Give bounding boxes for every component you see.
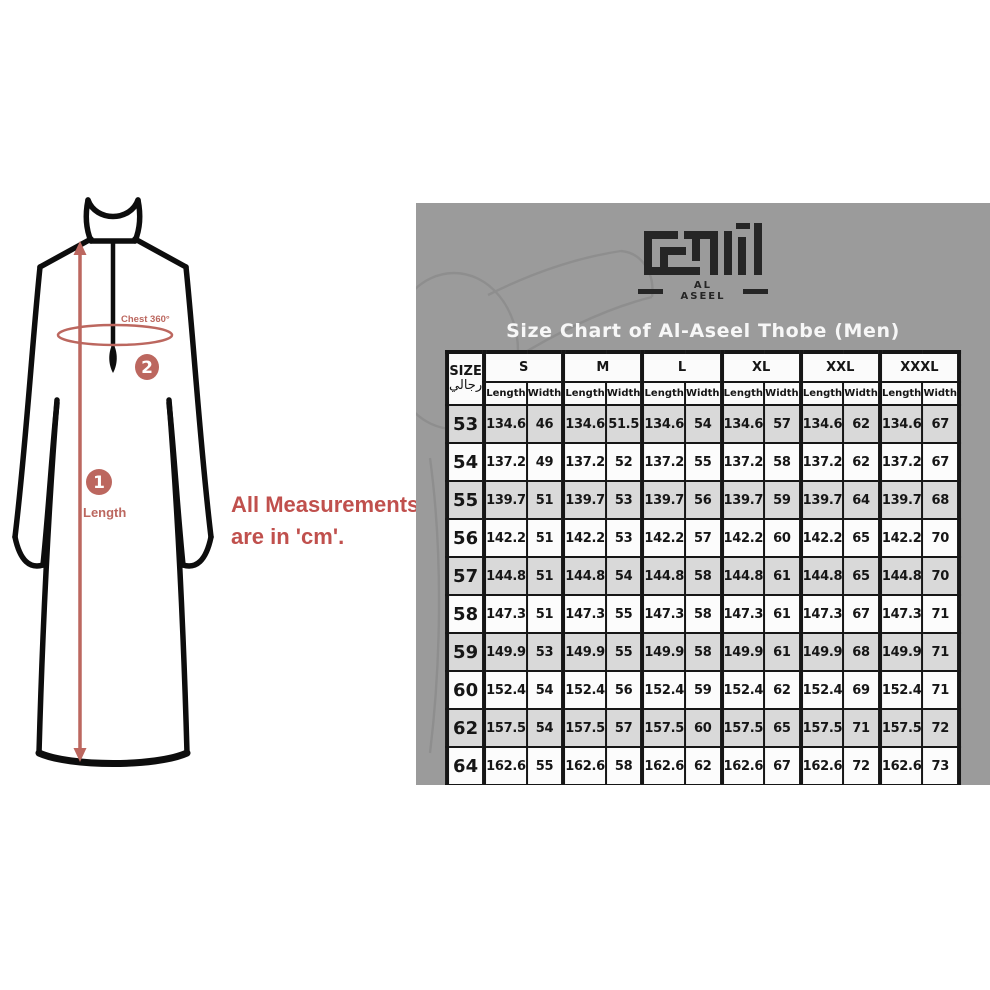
length-value: 134.6: [563, 405, 606, 443]
length-value: 142.2: [722, 519, 765, 557]
width-value: 58: [685, 633, 722, 671]
width-value: 54: [685, 405, 722, 443]
width-value: 59: [764, 481, 801, 519]
length-value: 137.2: [880, 443, 923, 481]
chest-label: Chest 360°: [121, 314, 170, 325]
length-value: 147.3: [484, 595, 527, 633]
length-value: 142.2: [801, 519, 844, 557]
note-line-1: All Measurements: [231, 489, 431, 521]
size-row-60: 60152.454152.456152.459152.462152.469152…: [447, 671, 959, 709]
length-value: 134.6: [642, 405, 685, 443]
sub-header-width: Width: [922, 382, 959, 405]
group-header-s: S: [484, 352, 563, 382]
length-value: 157.5: [722, 709, 765, 747]
length-value: 152.4: [642, 671, 685, 709]
length-value: 147.3: [880, 595, 923, 633]
length-value: 142.2: [563, 519, 606, 557]
length-value: 162.6: [801, 747, 844, 785]
width-value: 51.5: [606, 405, 643, 443]
length-value: 152.4: [484, 671, 527, 709]
width-value: 70: [922, 519, 959, 557]
length-label: Length: [83, 505, 126, 520]
width-value: 53: [606, 481, 643, 519]
length-value: 144.8: [722, 557, 765, 595]
note-line-2: are in 'cm'.: [231, 521, 431, 553]
sub-header-length: Length: [880, 382, 923, 405]
size-value: 59: [447, 633, 484, 671]
wordmark-bar-right: [743, 289, 768, 294]
length-value: 149.9: [801, 633, 844, 671]
length-value: 142.2: [484, 519, 527, 557]
width-value: 55: [527, 747, 564, 785]
width-value: 71: [843, 709, 880, 747]
width-value: 61: [764, 633, 801, 671]
width-value: 61: [764, 595, 801, 633]
size-table: SIZEرجاليSMLXLXXLXXXLLengthWidthLengthWi…: [445, 350, 961, 785]
size-row-57: 57144.851144.854144.858144.861144.865144…: [447, 557, 959, 595]
length-value: 137.2: [484, 443, 527, 481]
size-value: 60: [447, 671, 484, 709]
sub-header-width: Width: [764, 382, 801, 405]
brand-name: AL ASEEL: [669, 280, 736, 302]
width-value: 67: [764, 747, 801, 785]
width-value: 62: [685, 747, 722, 785]
size-row-55: 55139.751139.753139.756139.759139.764139…: [447, 481, 959, 519]
width-value: 64: [843, 481, 880, 519]
size-value: 64: [447, 747, 484, 785]
size-row-53: 53134.646134.651.5134.654134.657134.6621…: [447, 405, 959, 443]
length-value: 134.6: [484, 405, 527, 443]
width-value: 51: [527, 595, 564, 633]
length-value: 142.2: [642, 519, 685, 557]
width-value: 67: [922, 443, 959, 481]
placket-teardrop: [109, 343, 117, 373]
width-value: 69: [843, 671, 880, 709]
sub-header-length: Length: [563, 382, 606, 405]
length-value: 149.9: [642, 633, 685, 671]
length-value: 142.2: [880, 519, 923, 557]
size-chart-panel: AL ASEEL Size Chart of Al-Aseel Thobe (M…: [416, 203, 990, 785]
width-value: 56: [685, 481, 722, 519]
length-value: 144.8: [563, 557, 606, 595]
width-value: 54: [606, 557, 643, 595]
length-value: 157.5: [484, 709, 527, 747]
size-row-56: 56142.251142.253142.257142.260142.265142…: [447, 519, 959, 557]
length-value: 152.4: [801, 671, 844, 709]
length-value: 144.8: [801, 557, 844, 595]
size-row-59: 59149.953149.955149.958149.961149.968149…: [447, 633, 959, 671]
size-value: 56: [447, 519, 484, 557]
length-arrow: [74, 241, 87, 762]
width-value: 61: [764, 557, 801, 595]
width-value: 55: [606, 595, 643, 633]
length-value: 139.7: [484, 481, 527, 519]
length-value: 147.3: [801, 595, 844, 633]
width-value: 52: [606, 443, 643, 481]
width-value: 65: [843, 557, 880, 595]
width-value: 54: [527, 671, 564, 709]
width-value: 65: [843, 519, 880, 557]
width-value: 68: [843, 633, 880, 671]
width-value: 68: [922, 481, 959, 519]
header-row-sizes: SIZEرجاليSMLXLXXLXXXL: [447, 352, 959, 382]
width-value: 65: [764, 709, 801, 747]
width-value: 60: [685, 709, 722, 747]
length-value: 137.2: [642, 443, 685, 481]
width-value: 53: [606, 519, 643, 557]
length-marker-number: 1: [93, 473, 105, 493]
width-value: 62: [843, 443, 880, 481]
width-value: 57: [685, 519, 722, 557]
size-row-54: 54137.249137.252137.255137.258137.262137…: [447, 443, 959, 481]
length-value: 139.7: [563, 481, 606, 519]
width-value: 55: [606, 633, 643, 671]
width-value: 71: [922, 671, 959, 709]
length-value: 162.6: [642, 747, 685, 785]
chest-marker-number: 2: [141, 358, 153, 378]
size-row-64: 64162.655162.658162.662162.667162.672162…: [447, 747, 959, 785]
length-value: 162.6: [722, 747, 765, 785]
width-value: 62: [843, 405, 880, 443]
sub-header-length: Length: [642, 382, 685, 405]
length-value: 144.8: [880, 557, 923, 595]
size-value: 58: [447, 595, 484, 633]
size-value: 55: [447, 481, 484, 519]
group-header-xxxl: XXXL: [880, 352, 959, 382]
size-value: 54: [447, 443, 484, 481]
width-value: 71: [922, 633, 959, 671]
length-value: 139.7: [801, 481, 844, 519]
width-value: 72: [922, 709, 959, 747]
wordmark-bar-left: [638, 289, 663, 294]
length-value: 139.7: [642, 481, 685, 519]
length-value: 149.9: [880, 633, 923, 671]
length-value: 144.8: [642, 557, 685, 595]
length-value: 147.3: [642, 595, 685, 633]
al-aseel-kufic-mark: [644, 223, 762, 275]
sub-header-length: Length: [484, 382, 527, 405]
width-value: 58: [764, 443, 801, 481]
header-row-measures: LengthWidthLengthWidthLengthWidthLengthW…: [447, 382, 959, 405]
width-value: 73: [922, 747, 959, 785]
width-value: 54: [527, 709, 564, 747]
width-value: 53: [527, 633, 564, 671]
width-value: 58: [685, 557, 722, 595]
sub-header-width: Width: [527, 382, 564, 405]
sub-header-length: Length: [801, 382, 844, 405]
width-value: 62: [764, 671, 801, 709]
length-value: 149.9: [722, 633, 765, 671]
length-value: 157.5: [642, 709, 685, 747]
length-value: 152.4: [722, 671, 765, 709]
size-value: 62: [447, 709, 484, 747]
width-value: 56: [606, 671, 643, 709]
width-value: 58: [685, 595, 722, 633]
corner-header-arabic: رجالي: [449, 379, 482, 393]
sub-header-width: Width: [843, 382, 880, 405]
width-value: 58: [606, 747, 643, 785]
length-value: 139.7: [722, 481, 765, 519]
width-value: 67: [843, 595, 880, 633]
length-value: 162.6: [484, 747, 527, 785]
size-chart-title: Size Chart of Al-Aseel Thobe (Men): [416, 320, 990, 342]
group-header-xxl: XXL: [801, 352, 880, 382]
width-value: 72: [843, 747, 880, 785]
width-value: 67: [922, 405, 959, 443]
width-value: 51: [527, 519, 564, 557]
width-value: 51: [527, 481, 564, 519]
corner-header: SIZEرجالي: [447, 352, 484, 405]
size-row-58: 58147.351147.355147.358147.361147.367147…: [447, 595, 959, 633]
length-value: 137.2: [722, 443, 765, 481]
length-value: 162.6: [563, 747, 606, 785]
size-row-62: 62157.554157.557157.560157.565157.571157…: [447, 709, 959, 747]
width-value: 49: [527, 443, 564, 481]
width-value: 57: [764, 405, 801, 443]
group-header-m: M: [563, 352, 642, 382]
thobe-outline: [15, 200, 211, 764]
length-value: 147.3: [722, 595, 765, 633]
al-aseel-logo: AL ASEEL: [638, 223, 768, 302]
width-value: 70: [922, 557, 959, 595]
length-value: 134.6: [880, 405, 923, 443]
width-value: 60: [764, 519, 801, 557]
width-value: 46: [527, 405, 564, 443]
width-value: 51: [527, 557, 564, 595]
measurement-unit-note: All Measurements are in 'cm'.: [231, 489, 431, 553]
length-value: 144.8: [484, 557, 527, 595]
length-value: 134.6: [722, 405, 765, 443]
logo-wordmark: AL ASEEL: [638, 280, 768, 302]
group-header-l: L: [642, 352, 721, 382]
group-header-xl: XL: [722, 352, 801, 382]
length-value: 157.5: [880, 709, 923, 747]
product-infographic: Chest 360° 2 1 Length All Measurements a…: [0, 0, 990, 990]
width-value: 71: [922, 595, 959, 633]
length-value: 149.9: [563, 633, 606, 671]
width-value: 57: [606, 709, 643, 747]
length-value: 152.4: [563, 671, 606, 709]
length-value: 137.2: [801, 443, 844, 481]
width-value: 55: [685, 443, 722, 481]
sub-header-width: Width: [685, 382, 722, 405]
width-value: 59: [685, 671, 722, 709]
size-value: 57: [447, 557, 484, 595]
length-value: 157.5: [801, 709, 844, 747]
length-value: 162.6: [880, 747, 923, 785]
length-value: 137.2: [563, 443, 606, 481]
length-value: 149.9: [484, 633, 527, 671]
size-value: 53: [447, 405, 484, 443]
corner-header-en: SIZE: [449, 365, 482, 379]
length-value: 147.3: [563, 595, 606, 633]
sub-header-width: Width: [606, 382, 643, 405]
sub-header-length: Length: [722, 382, 765, 405]
size-table-wrap: SIZEرجاليSMLXLXXLXXXLLengthWidthLengthWi…: [445, 350, 961, 785]
length-value: 152.4: [880, 671, 923, 709]
length-value: 134.6: [801, 405, 844, 443]
length-value: 139.7: [880, 481, 923, 519]
length-value: 157.5: [563, 709, 606, 747]
